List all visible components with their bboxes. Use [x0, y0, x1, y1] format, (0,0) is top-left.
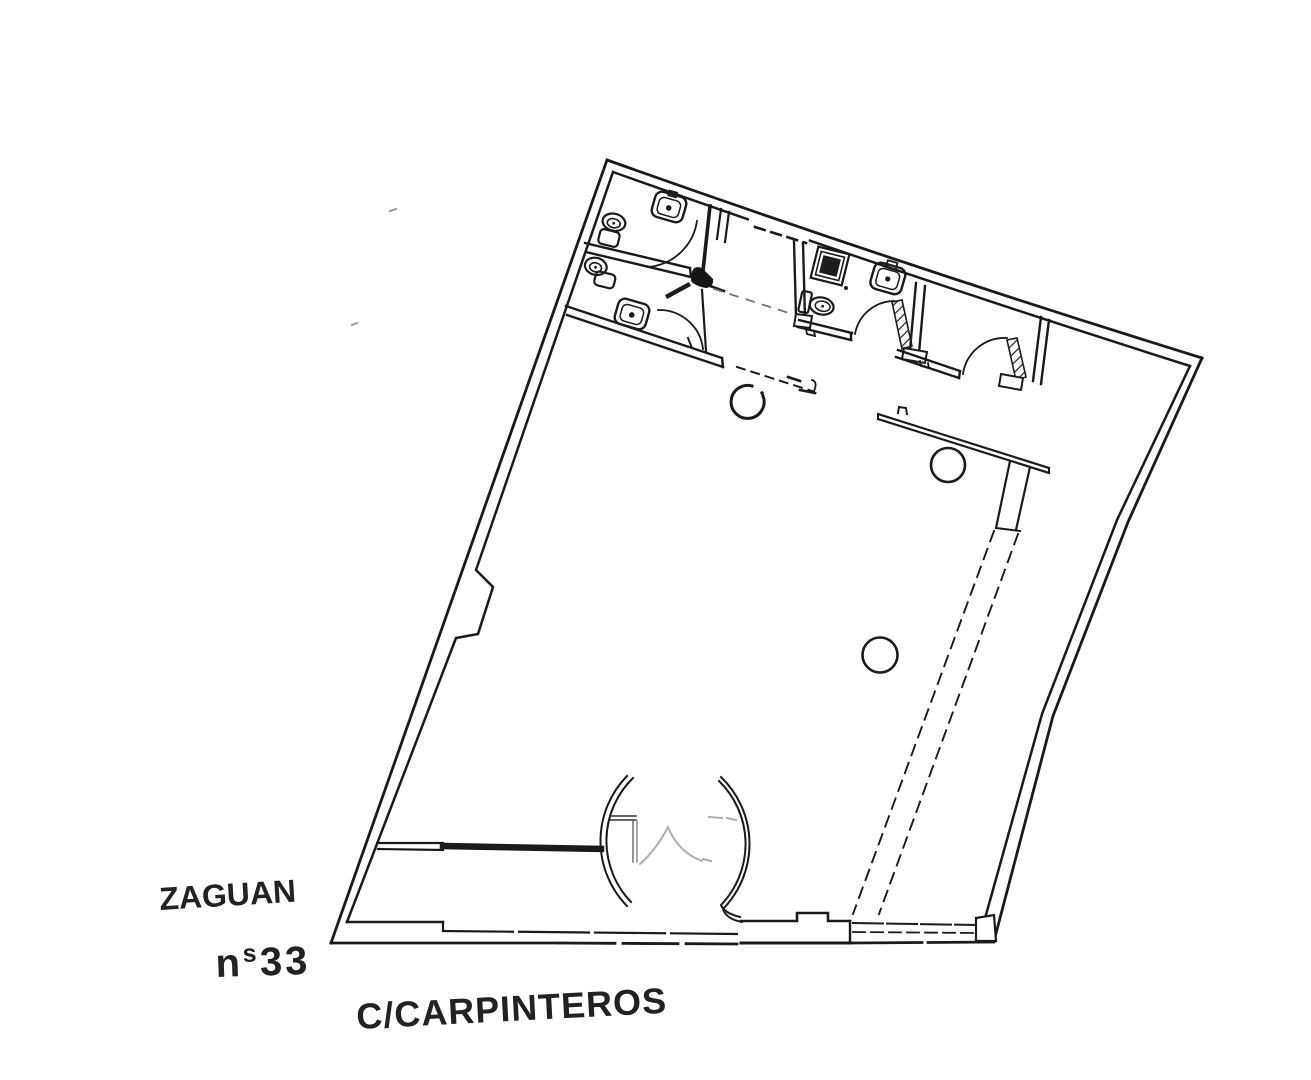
svg-text:ZAGUAN: ZAGUAN	[158, 873, 297, 917]
svg-text:ns33: ns33	[215, 938, 311, 986]
svg-text:C/CARPINTEROS: C/CARPINTEROS	[355, 980, 668, 1037]
